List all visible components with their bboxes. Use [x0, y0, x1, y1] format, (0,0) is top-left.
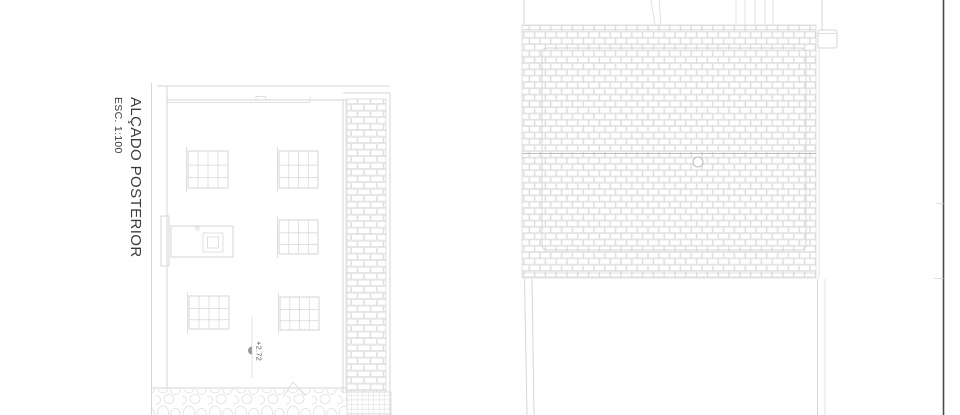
chimney-stub	[256, 97, 266, 101]
level-symbol-icon	[248, 347, 252, 355]
door-and-meter-box	[161, 216, 233, 266]
drawing-scale: ESC. 1:100	[112, 97, 124, 267]
drawing-line	[532, 279, 534, 415]
drawing-line	[188, 151, 228, 188]
drawing-title: ALÇADO POSTERIOR	[127, 97, 143, 267]
drawing-line	[279, 220, 318, 254]
adjacent-walls-top	[524, 0, 773, 25]
roof-vent-circle	[693, 157, 703, 167]
window	[279, 293, 320, 334]
title-block: ALÇADO POSTERIOR ESC. 1:100	[112, 97, 143, 267]
box-outline	[171, 226, 233, 257]
pilaster	[161, 216, 169, 266]
meter-window-inner	[208, 237, 219, 248]
window	[278, 147, 319, 192]
rear-elevation-drawing: +2.72	[152, 83, 392, 415]
drawing-line	[280, 297, 319, 330]
adjacent-structure-topright	[818, 0, 837, 278]
brick-corner-strip	[343, 93, 390, 415]
drawing-line	[347, 99, 386, 392]
meter-window-outer	[203, 233, 223, 252]
drawing-line	[736, 0, 773, 25]
walls-below-roof	[525, 279, 826, 415]
sheet-edge	[934, 0, 944, 415]
tile-base-patch	[347, 392, 391, 415]
roof-tile-hatch	[522, 25, 816, 278]
drawing-line	[347, 392, 391, 415]
drawing-line	[152, 389, 347, 415]
small-fixture	[196, 227, 199, 230]
drawing-line	[525, 279, 528, 415]
drawing-line	[651, 0, 655, 25]
window	[278, 216, 319, 258]
drawing-sheet: +2.72	[0, 0, 960, 415]
stone-rubble-base	[152, 382, 347, 415]
window	[187, 147, 229, 192]
level-value: +2.72	[255, 341, 264, 361]
roof-plan-drawing	[522, 0, 837, 415]
drawing-line	[818, 30, 837, 48]
drawing-line	[659, 0, 661, 25]
drawing-line	[189, 296, 229, 329]
drawing-line	[279, 151, 318, 188]
level-marker: +2.72	[248, 317, 264, 378]
drawing-line	[522, 25, 816, 278]
cad-canvas: +2.72	[0, 0, 960, 415]
window	[188, 292, 230, 333]
